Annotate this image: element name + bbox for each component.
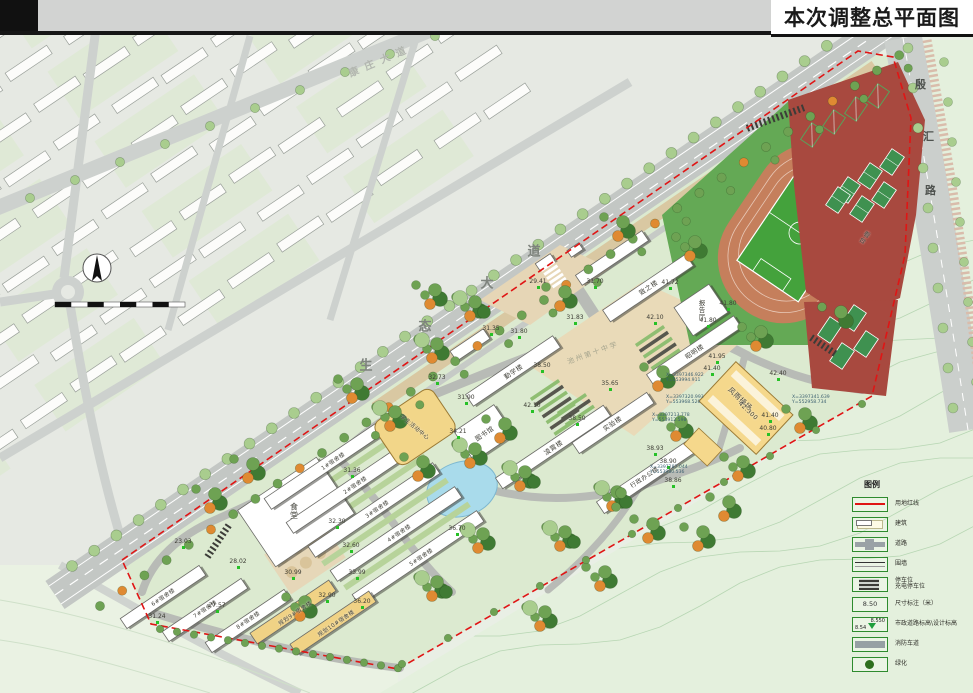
- legend-label-line: 消防车道: [895, 641, 919, 648]
- site-plan-page: 致之楼报告厅昭明楼勤学楼图书馆凌霄楼实验楼行政办公楼风雨操场42.300看台食堂…: [0, 0, 973, 693]
- redline-swatch-line: [855, 503, 885, 505]
- legend-swatch-road: [852, 537, 888, 552]
- wall-swatch-line2: [855, 566, 885, 567]
- legend-label-line: 用地红线: [895, 501, 919, 508]
- legend-label: 道路: [895, 541, 907, 548]
- greening-swatch: [865, 660, 874, 669]
- legend-row-fire: 消防车道: [852, 634, 973, 654]
- north-compass: [83, 254, 111, 282]
- legend-label: 绿化: [895, 661, 907, 668]
- legend-swatch-redline: [852, 497, 888, 512]
- legend-row-wall: 围墙: [852, 554, 973, 574]
- legend-label: 停车位充电停车位: [895, 578, 925, 591]
- wall-swatch-line: [855, 562, 885, 563]
- legend-row-building: 建筑: [852, 514, 973, 534]
- fire-lane-swatch: [855, 641, 885, 648]
- title-bar-strip: [38, 0, 771, 31]
- parking-swatch-grid: [859, 579, 879, 590]
- legend-label-line: 绿化: [895, 661, 907, 668]
- elevation-swatch-triangle: [868, 623, 876, 629]
- building-swatch-inner: [856, 520, 872, 526]
- legend-label-line: 尺寸标注（米）: [895, 601, 937, 608]
- page-title: 本次调整总平面图: [784, 2, 960, 32]
- title-bar-line: [0, 31, 771, 35]
- elevation-swatch-v2: 8.54: [855, 625, 866, 631]
- legend-row-road: 道路: [852, 534, 973, 554]
- legend-label: 消防车道: [895, 641, 919, 648]
- road-swatch-v: [865, 539, 874, 550]
- title-bar-block: [0, 0, 38, 34]
- legend-label: 围墙: [895, 561, 907, 568]
- legend-label: 用地红线: [895, 501, 919, 508]
- legend-label-line: 建筑: [895, 521, 907, 528]
- legend-label-line: 道路: [895, 541, 907, 548]
- legend-row-elev: 8.5508.54市政道路标高\设计标高: [852, 614, 973, 634]
- legend-swatch-parking: [852, 577, 888, 592]
- site-plan-map[interactable]: [0, 0, 973, 693]
- legend-label-line: 市政道路标高\设计标高: [895, 621, 957, 628]
- page-title-box: 本次调整总平面图: [771, 0, 973, 37]
- legend-row-green: 绿化: [852, 654, 973, 674]
- legend-label: 市政道路标高\设计标高: [895, 621, 957, 628]
- legend-swatch-elev: 8.5508.54: [852, 617, 888, 632]
- map-canvas[interactable]: [0, 0, 973, 693]
- legend: 图例 用地红线建筑道路围墙停车位充电停车位8.50尺寸标注（米）8.5508.5…: [852, 479, 973, 674]
- legend-swatch-fire: [852, 637, 888, 652]
- legend-label-line: 围墙: [895, 561, 907, 568]
- dimension-swatch-value: 8.50: [853, 598, 887, 611]
- legend-row-dim: 8.50尺寸标注（米）: [852, 594, 973, 614]
- legend-row-parking: 停车位充电停车位: [852, 574, 973, 594]
- legend-row-redline: 用地红线: [852, 494, 973, 514]
- legend-swatch-wall: [852, 557, 888, 572]
- legend-swatch-building: [852, 517, 888, 532]
- legend-swatch-green: [852, 657, 888, 672]
- legend-swatch-dim: 8.50: [852, 597, 888, 612]
- legend-label-line2: 充电停车位: [895, 584, 925, 591]
- legend-title: 图例: [864, 479, 973, 490]
- scale-bar: [55, 302, 185, 307]
- legend-label: 尺寸标注（米）: [895, 601, 937, 608]
- legend-label: 建筑: [895, 521, 907, 528]
